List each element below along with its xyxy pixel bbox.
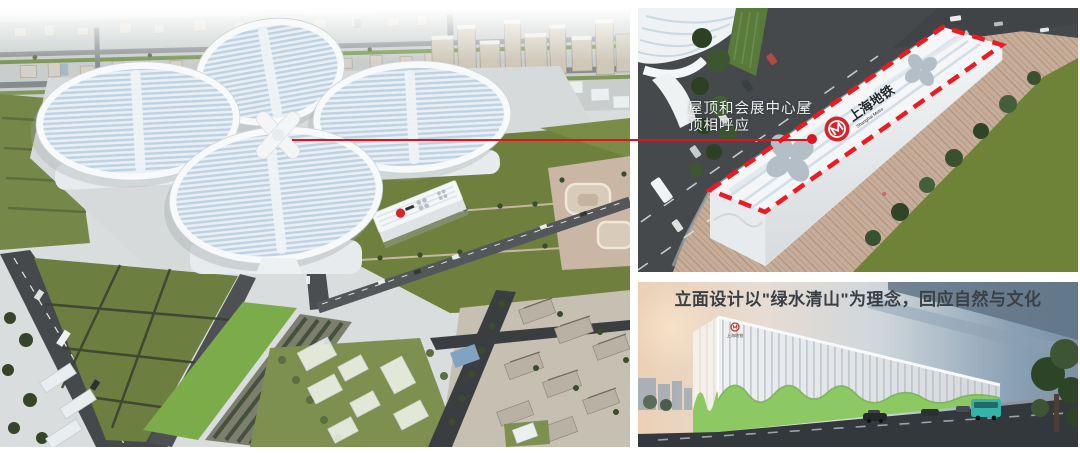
facade-caption: 立面设计以"绿水清山"为理念，回应自然与文化 — [638, 285, 1078, 310]
callout-line — [292, 139, 812, 141]
development-massing — [250, 337, 460, 447]
presentation-board: 上海地铁 Shanghai Metro 屋顶和会展中心屋 顶相呼应 — [0, 0, 1080, 455]
facade-logo-zh: 上海地铁 — [727, 332, 745, 339]
callout-dot — [807, 134, 817, 144]
roof-annotation-line2: 顶相呼应 — [688, 118, 812, 135]
roof-annotation: 屋顶和会展中心屋 顶相呼应 — [688, 101, 812, 135]
aerial-view-panel — [0, 8, 630, 447]
roof-annotation-line1: 屋顶和会展中心屋 — [688, 101, 812, 118]
aerial-render — [0, 8, 630, 447]
facade-panel: 上海地铁 — [638, 282, 1078, 447]
